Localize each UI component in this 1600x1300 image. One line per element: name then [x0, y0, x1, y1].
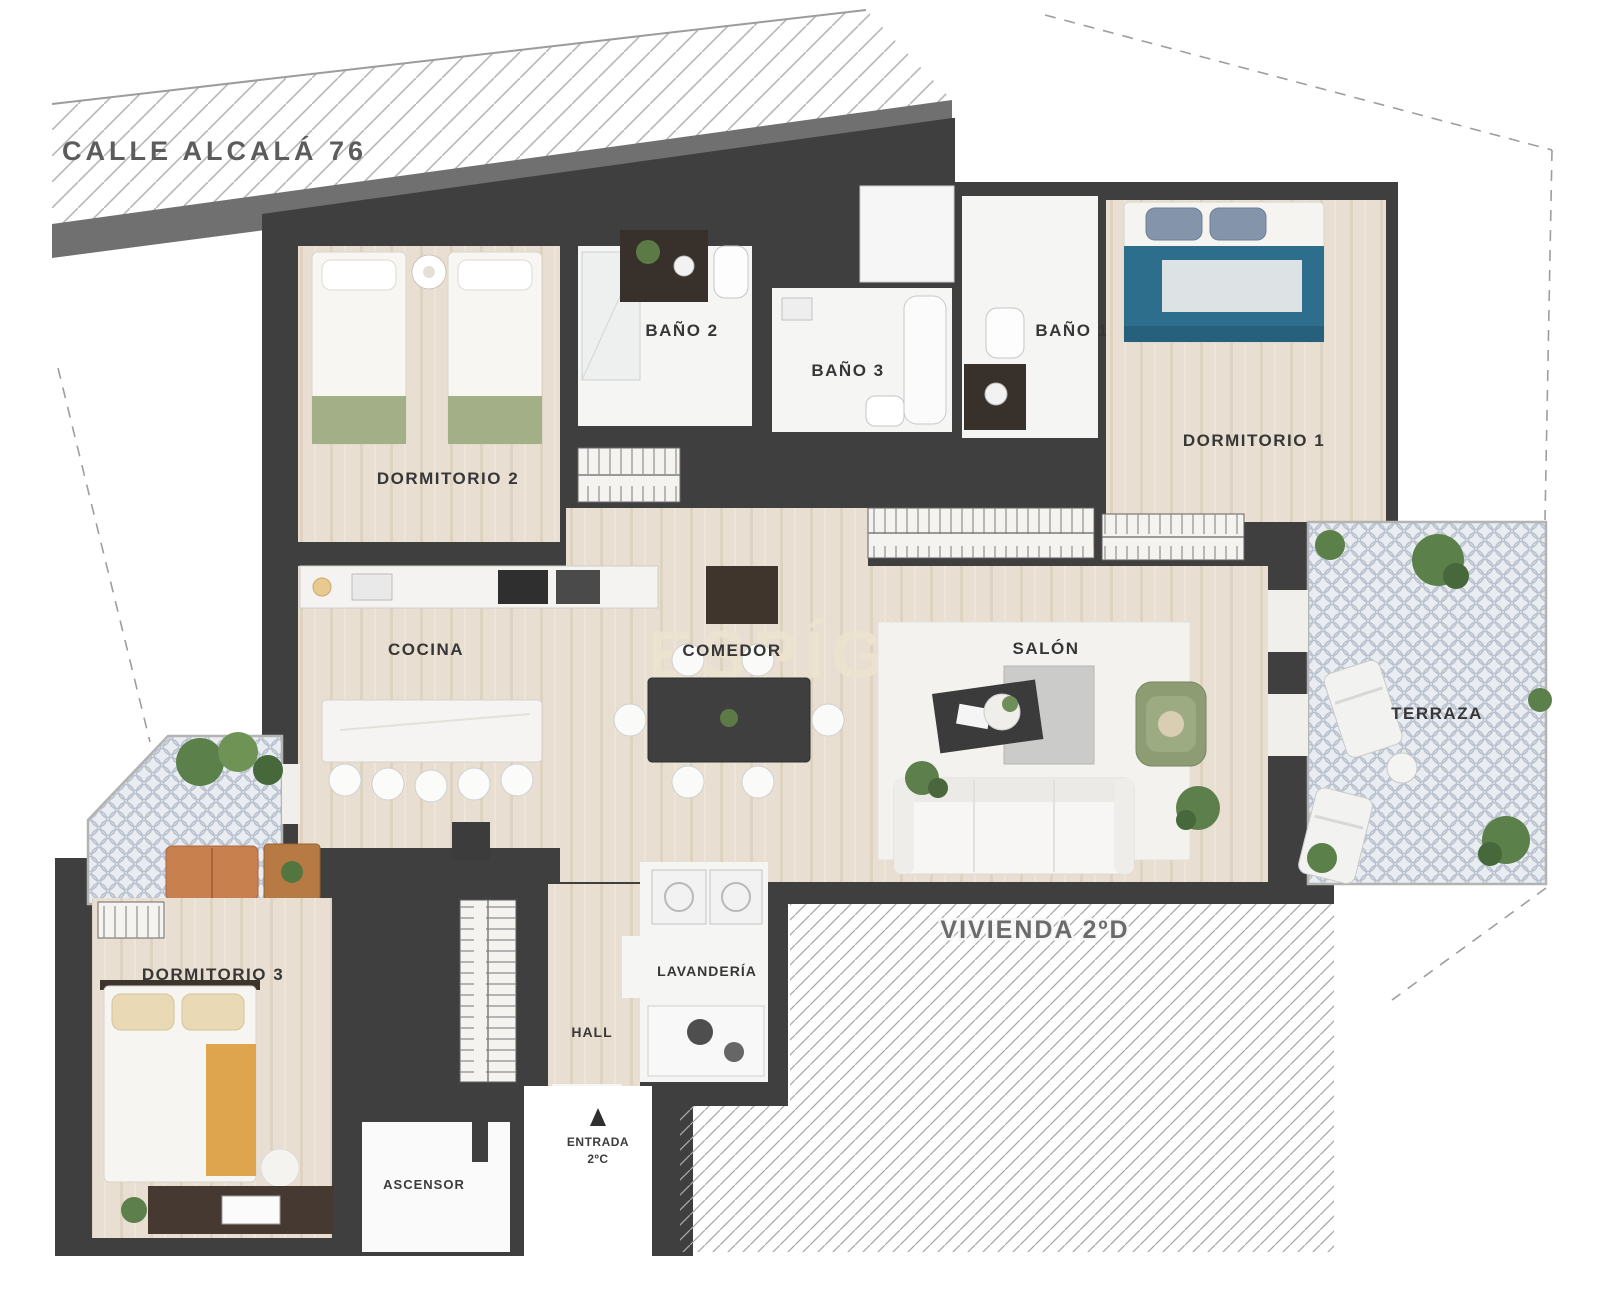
sideboard — [706, 566, 778, 624]
dresser-plant — [121, 1197, 147, 1223]
duvet-edge — [1124, 326, 1324, 342]
double-bed — [1124, 202, 1324, 342]
single-bed-left — [312, 252, 406, 444]
room-ascensor: ASCENSOR — [362, 1118, 510, 1252]
entrance-label-line2: 2ºC — [587, 1152, 608, 1166]
floor-plant-leaves — [1176, 810, 1196, 830]
bano-2-label: BAÑO 2 — [645, 320, 718, 340]
nightstand-lamp — [423, 266, 435, 278]
hall-zone: HALL — [460, 884, 640, 1100]
entrance-floor — [524, 1086, 652, 1256]
single-bed-right — [448, 252, 542, 444]
cooktop — [498, 570, 548, 604]
kitchen-terrace-door — [282, 764, 300, 824]
room-bano-1: BAÑO 1 — [962, 196, 1109, 438]
salon-label: SALÓN — [1013, 639, 1080, 658]
dormitorio-2-label: DORMITORIO 2 — [377, 469, 519, 488]
dresser-tv — [121, 1186, 334, 1234]
terrace-wood-table — [264, 844, 320, 900]
terrace-table — [1387, 753, 1417, 783]
vanity-dark — [620, 230, 708, 302]
wall-entry-east — [650, 1098, 680, 1256]
plant-leaves — [928, 778, 948, 798]
laundry-basin-1 — [687, 1019, 713, 1045]
table-centerpiece — [720, 709, 738, 727]
terraza-door-2 — [1268, 694, 1308, 756]
pillow — [1210, 208, 1266, 240]
mustard-throw — [206, 1044, 256, 1176]
deco-plant — [1002, 696, 1018, 712]
toilet — [986, 308, 1024, 358]
sink-basin — [674, 256, 694, 276]
duvet-fold — [1162, 260, 1302, 312]
ascensor-label: ASCENSOR — [383, 1177, 465, 1192]
neighbor-label: VIVIENDA 2ºD — [940, 916, 1129, 944]
terraza-door-1 — [1268, 590, 1308, 652]
ascensor-wall-stub — [472, 1118, 488, 1162]
light-shaft — [860, 186, 954, 282]
pillow — [182, 994, 244, 1030]
hall-closets — [868, 508, 1244, 560]
room-dormitorio-3: DORMITORIO 3 — [92, 898, 334, 1238]
room-bano-3: BAÑO 3 — [772, 288, 952, 432]
floor-plan-canvas: CALLE ALCALÁ 76 VIVIENDA 2ºD — [0, 0, 1600, 1300]
toilet — [866, 396, 904, 426]
room-salon: SALÓN — [878, 622, 1220, 874]
lavanderia-label: LAVANDERÍA — [657, 963, 757, 979]
double-bed-dorm3 — [100, 980, 260, 1182]
pasillo-floor — [566, 508, 868, 566]
bano-1-label: BAÑO 1 — [1035, 320, 1108, 340]
kitchen-stool-dark — [452, 822, 490, 860]
pouf — [261, 1149, 299, 1187]
cocina-label: COCINA — [388, 640, 464, 659]
lavanderia-door-gap — [622, 936, 640, 998]
laundry-basin-2 — [724, 1042, 744, 1062]
room-bano-2: BAÑO 2 — [578, 230, 752, 426]
kitchen-sink — [352, 574, 392, 600]
pillow — [1146, 208, 1202, 240]
oven — [556, 570, 600, 604]
sink — [782, 298, 812, 320]
bowl — [313, 578, 331, 596]
floor-plan-image: CALLE ALCALÁ 76 VIVIENDA 2ºD — [0, 0, 1600, 1300]
room-dormitorio-1: DORMITORIO 1 — [1106, 200, 1386, 522]
room-lavanderia: LAVANDERÍA — [622, 862, 768, 1082]
dormitorio-1-label: DORMITORIO 1 — [1183, 431, 1325, 450]
armchair-green — [1136, 682, 1206, 766]
terraza-label: TERRAZA — [1391, 704, 1483, 723]
entrance-label-line1: ENTRADA — [567, 1135, 629, 1149]
bano-3-label: BAÑO 3 — [811, 360, 884, 380]
bathtub — [904, 296, 946, 424]
street-label: CALLE ALCALÁ 76 — [62, 135, 367, 166]
room-terraza: TERRAZA — [1268, 522, 1552, 885]
dorm3-wardrobe-ticks — [98, 902, 164, 938]
toilet — [714, 246, 748, 298]
hall-label: HALL — [571, 1024, 612, 1040]
terrace-sofa-orange — [166, 846, 258, 900]
pillow — [112, 994, 174, 1030]
sink-basin — [985, 383, 1007, 405]
tv — [222, 1196, 280, 1224]
kitchen-island — [322, 700, 542, 762]
dormitorio-3-label: DORMITORIO 3 — [142, 965, 284, 984]
vanity-plant — [636, 240, 660, 264]
entrance-zone: ENTRADA 2ºC — [524, 1086, 652, 1256]
comedor-label: COMEDOR — [682, 641, 781, 660]
